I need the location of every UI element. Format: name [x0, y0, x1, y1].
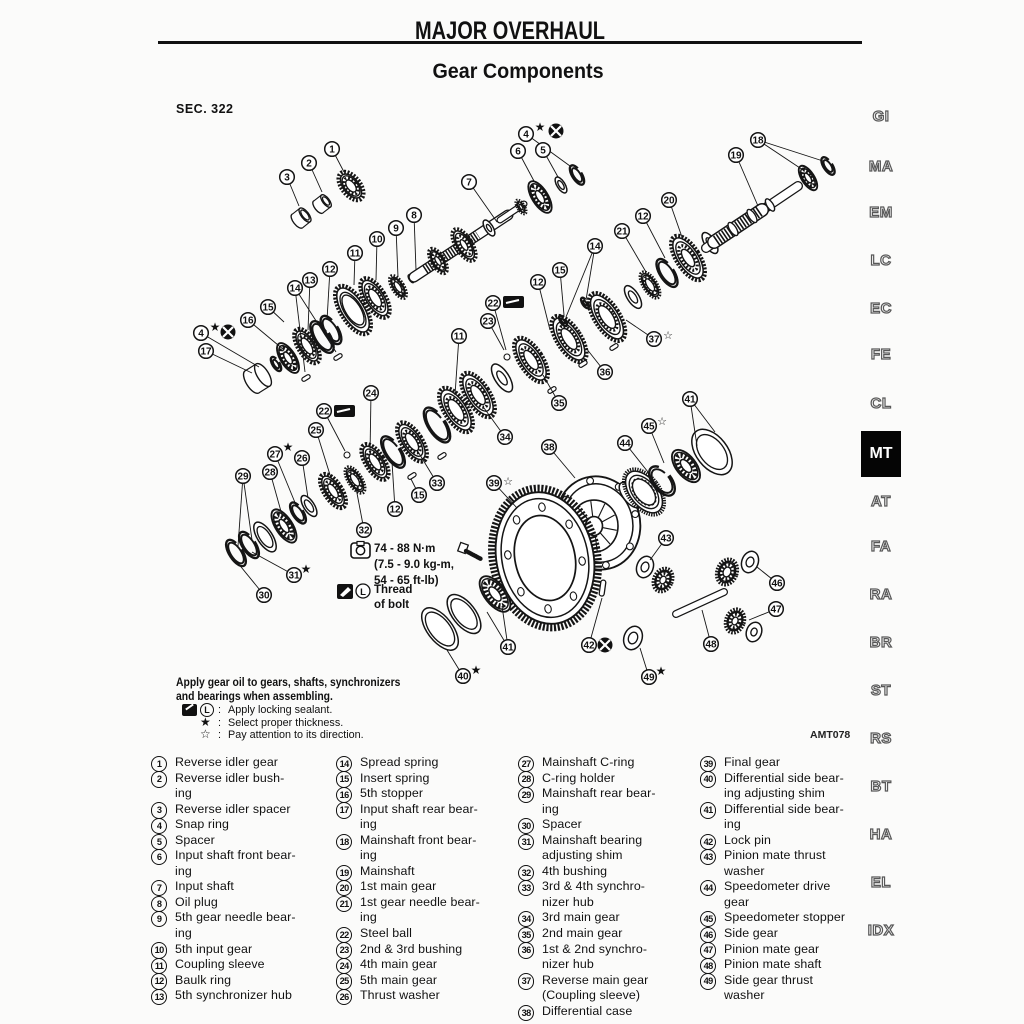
svg-text:25: 25 [310, 426, 322, 437]
svg-text:43: 43 [660, 534, 672, 545]
svg-text:37: 37 [648, 335, 660, 346]
svg-text:10: 10 [371, 235, 383, 246]
svg-text:21: 21 [616, 227, 628, 238]
svg-text:22: 22 [318, 407, 330, 418]
svg-text:☆: ☆ [663, 330, 673, 342]
svg-text:24: 24 [365, 389, 377, 400]
svg-text:33: 33 [431, 479, 443, 490]
svg-text:12: 12 [637, 212, 649, 223]
svg-text:32: 32 [358, 526, 370, 537]
svg-text:★: ★ [283, 440, 294, 454]
svg-text:11: 11 [454, 332, 465, 343]
svg-text:★: ★ [471, 663, 482, 677]
svg-text:12: 12 [324, 265, 336, 276]
svg-text:29: 29 [237, 472, 249, 483]
svg-text:14: 14 [289, 284, 301, 295]
svg-text:26: 26 [296, 454, 308, 465]
svg-text:3: 3 [284, 173, 290, 184]
svg-text:23: 23 [482, 317, 494, 328]
svg-text:7: 7 [466, 178, 472, 189]
svg-text:L: L [360, 587, 366, 598]
svg-text:★: ★ [535, 120, 546, 134]
svg-text:19: 19 [730, 151, 742, 162]
svg-text:5: 5 [540, 146, 546, 157]
svg-text:28: 28 [264, 468, 276, 479]
svg-text:12: 12 [389, 505, 401, 516]
svg-text:42: 42 [583, 641, 595, 652]
svg-text:36: 36 [599, 368, 611, 379]
svg-text:41: 41 [502, 643, 514, 654]
svg-text:15: 15 [554, 266, 566, 277]
svg-text:30: 30 [258, 591, 270, 602]
svg-text:9: 9 [393, 224, 399, 235]
svg-text:16: 16 [242, 316, 254, 327]
svg-text:48: 48 [705, 640, 717, 651]
svg-text:38: 38 [543, 443, 555, 454]
svg-text:18: 18 [752, 136, 764, 147]
svg-text:☆: ☆ [657, 416, 667, 428]
svg-text:2: 2 [306, 159, 312, 170]
svg-text:47: 47 [770, 605, 782, 616]
svg-text:4: 4 [523, 130, 529, 141]
svg-text:11: 11 [350, 249, 361, 260]
svg-text:27: 27 [269, 450, 281, 461]
svg-text:6: 6 [515, 147, 521, 158]
svg-text:15: 15 [413, 491, 425, 502]
svg-text:22: 22 [487, 299, 499, 310]
svg-text:45: 45 [643, 422, 655, 433]
svg-text:4: 4 [198, 329, 204, 340]
svg-text:8: 8 [411, 211, 417, 222]
svg-text:35: 35 [553, 399, 565, 410]
svg-text:1: 1 [329, 145, 335, 156]
svg-text:20: 20 [663, 196, 675, 207]
svg-text:31: 31 [288, 571, 300, 582]
svg-text:46: 46 [771, 579, 783, 590]
svg-text:12: 12 [532, 278, 544, 289]
svg-text:★: ★ [301, 562, 312, 576]
svg-text:39: 39 [488, 479, 500, 490]
svg-text:★: ★ [210, 320, 221, 334]
svg-text:34: 34 [499, 433, 511, 444]
svg-text:41: 41 [684, 395, 696, 406]
svg-text:17: 17 [200, 347, 212, 358]
svg-text:☆: ☆ [503, 476, 513, 488]
svg-text:15: 15 [262, 303, 274, 314]
svg-text:49: 49 [643, 673, 655, 684]
svg-text:14: 14 [589, 242, 601, 253]
svg-text:★: ★ [656, 664, 667, 678]
svg-text:13: 13 [304, 276, 316, 287]
svg-text:44: 44 [619, 439, 631, 450]
